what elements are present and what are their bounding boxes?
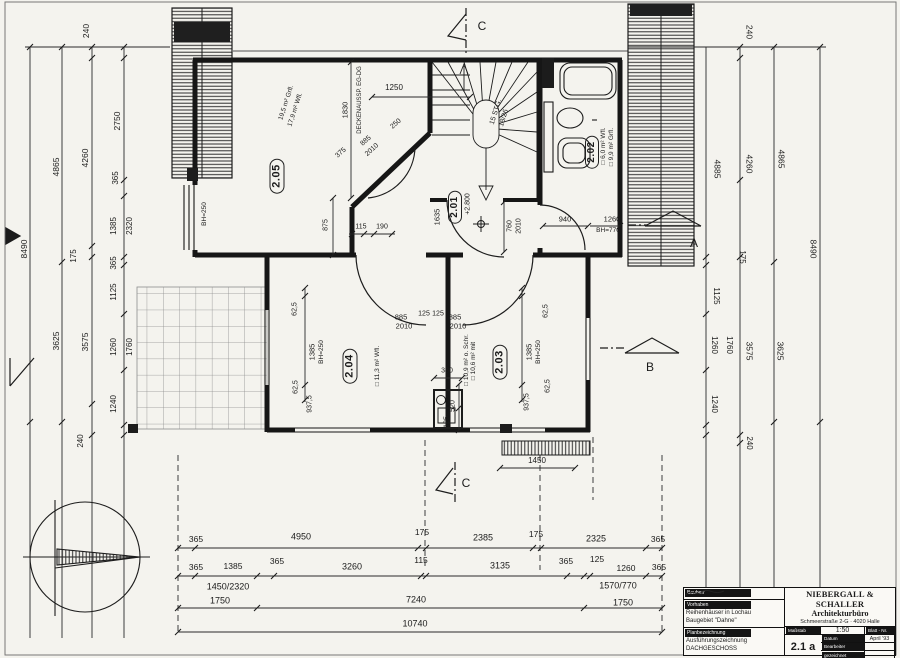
plan-line1: Ausführungszeichnung (686, 638, 782, 646)
plan-drawing (0, 0, 900, 658)
north-arrow (23, 500, 150, 616)
section-marker-c-bottom (436, 468, 453, 494)
firm-name: NIEBERGALL & SCHALLER (785, 588, 895, 609)
plan-label: Planbezeichnung (685, 629, 751, 637)
firm-address: Schmeerstraße 2-G · 4020 Halle (785, 618, 895, 627)
roof-hatch-bottom (502, 441, 590, 455)
floor-plan-page: 2.052.012.022.042.0319,5 m² Grfl.17,9 m²… (0, 0, 900, 658)
title-block-right: NIEBERGALL & SCHALLER Architekturbüro Sc… (785, 588, 895, 655)
editor-label: Bearbeiter (822, 643, 864, 650)
section-marker-b (625, 338, 679, 353)
level-mark (473, 216, 489, 232)
edge-mark-left-top (6, 228, 20, 244)
sheet-number: 2.1 a (785, 635, 821, 658)
section-marker-c-top (448, 14, 466, 40)
sheet-label: Blatt - Nr. (866, 627, 895, 634)
roof-hatch-left (172, 8, 232, 178)
firm-type: Architekturbüro (785, 609, 895, 618)
scale-value: 1:50 (821, 627, 865, 635)
staircase (432, 62, 537, 200)
plan-value: Ausführungszeichnung DACHGESCHOSS (684, 637, 784, 655)
project-line2: Baugebiet "Dahne" (686, 618, 782, 626)
washbasin (557, 108, 583, 128)
scale-label: Maßstab (786, 627, 820, 634)
drawn-label: gezeichnet (822, 652, 864, 658)
roof-hatch-right (628, 4, 694, 266)
title-block-grid: Maßstab 1:50 Blatt - Nr. Datum April '93… (785, 627, 895, 658)
drawn-value (865, 651, 895, 658)
bath-cabinet (544, 102, 553, 172)
bathroom-fixtures (544, 63, 616, 172)
project-line1: Reihenhäuser in Lochau (686, 610, 782, 618)
date-label: Datum (822, 635, 864, 642)
plan-line2: DACHGESCHOSS (686, 646, 782, 654)
project-label: Vorhaben (685, 601, 751, 609)
project-value: Reihenhäuser in Lochau Baugebiet "Dahne" (684, 609, 784, 628)
title-block-left: Bauherr Vorhaben Reihenhäuser in Lochau … (684, 588, 785, 655)
terrace-tiles (137, 287, 267, 429)
date-value: April '93 (865, 635, 895, 643)
signature (865, 643, 895, 651)
title-block: Bauherr Vorhaben Reihenhäuser in Lochau … (683, 587, 896, 656)
